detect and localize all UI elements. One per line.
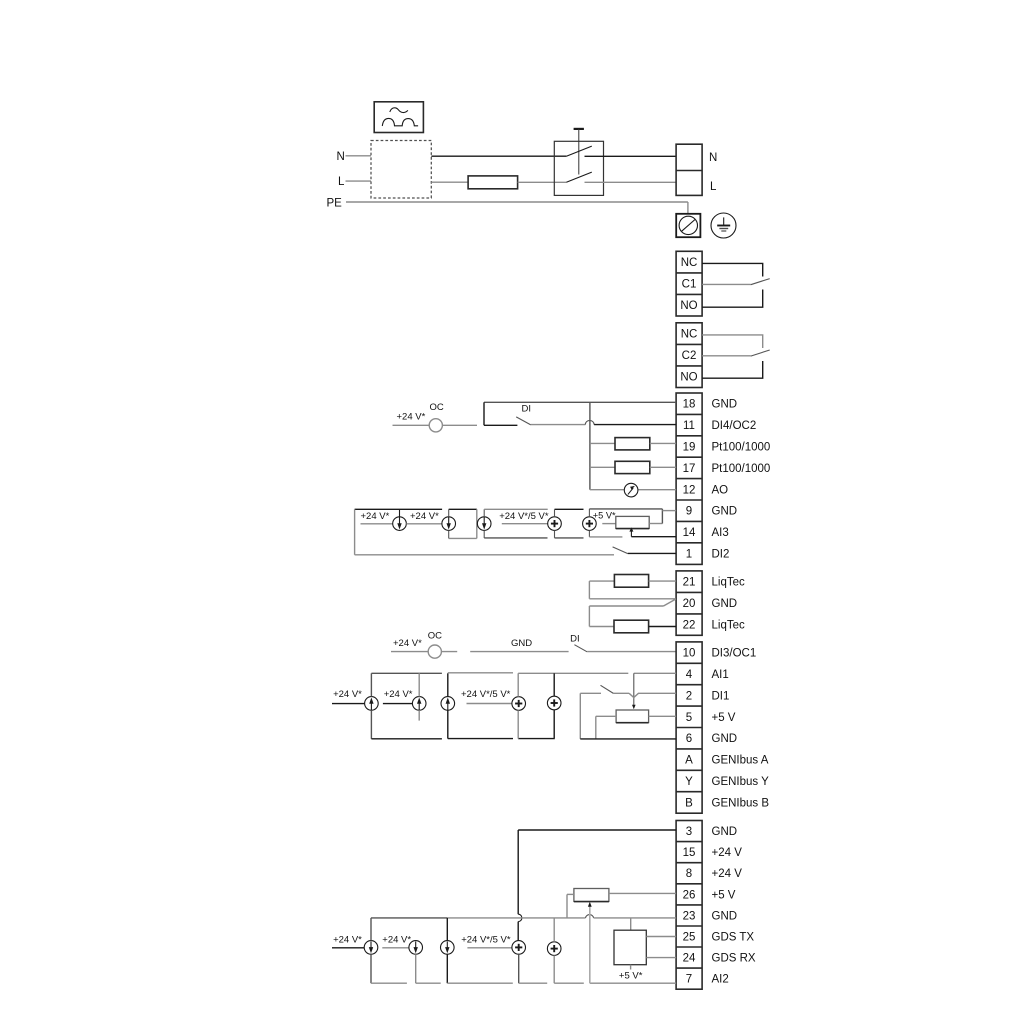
svg-text:22: 22 [683, 620, 696, 632]
svg-text:NO: NO [680, 300, 697, 312]
svg-text:+5 V: +5 V [712, 889, 736, 901]
svg-text:GND: GND [712, 399, 738, 411]
svg-text:GDS RX: GDS RX [712, 953, 756, 965]
svg-text:6: 6 [686, 733, 692, 745]
svg-text:L: L [338, 176, 345, 188]
svg-text:+5 V*: +5 V* [619, 970, 643, 981]
svg-text:AI1: AI1 [712, 669, 729, 681]
svg-text:7: 7 [686, 974, 692, 986]
svg-text:GND: GND [712, 506, 738, 518]
svg-text:19: 19 [683, 442, 696, 454]
svg-text:5: 5 [686, 712, 692, 724]
svg-text:14: 14 [683, 527, 696, 539]
svg-text:GND: GND [712, 826, 738, 838]
svg-text:GENIbus B: GENIbus B [712, 797, 770, 809]
svg-text:20: 20 [683, 598, 696, 610]
svg-text:NC: NC [681, 329, 698, 341]
svg-text:AI2: AI2 [712, 974, 729, 986]
svg-text:DI: DI [522, 404, 532, 415]
svg-text:NC: NC [681, 257, 698, 269]
svg-text:11: 11 [683, 420, 695, 432]
svg-text:12: 12 [683, 484, 696, 496]
svg-text:26: 26 [683, 889, 696, 901]
svg-text:+24 V*: +24 V* [333, 689, 362, 700]
svg-text:L: L [710, 181, 717, 193]
svg-text:DI: DI [570, 634, 580, 645]
svg-text:+24 V*: +24 V* [361, 511, 390, 522]
svg-text:15: 15 [683, 847, 696, 859]
svg-text:+24 V: +24 V [712, 868, 743, 880]
svg-text:25: 25 [683, 932, 696, 944]
svg-text:24: 24 [683, 953, 696, 965]
svg-text:Pt100/1000: Pt100/1000 [712, 463, 771, 475]
svg-text:Pt100/1000: Pt100/1000 [712, 442, 771, 454]
svg-text:DI2: DI2 [712, 549, 730, 561]
svg-text:23: 23 [683, 910, 696, 922]
svg-text:9: 9 [686, 506, 692, 518]
svg-text:+24 V*/5 V*: +24 V*/5 V* [461, 689, 511, 700]
svg-text:+24 V: +24 V [712, 847, 743, 859]
svg-text:+24 V*/5 V*: +24 V*/5 V* [499, 511, 549, 522]
svg-text:N: N [709, 152, 717, 164]
svg-text:+5 V*: +5 V* [593, 511, 616, 521]
svg-text:GDS TX: GDS TX [712, 932, 755, 944]
svg-text:+24 V*: +24 V* [384, 689, 413, 700]
svg-text:1: 1 [686, 549, 692, 561]
svg-text:DI1: DI1 [712, 690, 730, 702]
svg-text:4: 4 [686, 669, 693, 681]
svg-text:GND: GND [712, 910, 738, 922]
svg-text:8: 8 [686, 868, 692, 880]
svg-text:OC: OC [428, 631, 442, 642]
svg-text:+24 V*: +24 V* [410, 511, 439, 522]
svg-text:18: 18 [683, 399, 696, 411]
svg-text:+24 V*/5 V*: +24 V*/5 V* [461, 935, 511, 946]
svg-text:A: A [685, 755, 693, 767]
svg-text:LiqTec: LiqTec [712, 620, 745, 632]
svg-text:AO: AO [712, 484, 729, 496]
svg-text:OC: OC [430, 402, 444, 413]
svg-text:GND: GND [511, 638, 532, 649]
svg-text:+24 V*: +24 V* [393, 638, 422, 649]
svg-text:3: 3 [686, 826, 692, 838]
svg-text:10: 10 [683, 648, 696, 660]
svg-text:2: 2 [686, 690, 692, 702]
svg-text:GENIbus A: GENIbus A [712, 755, 769, 767]
svg-text:17: 17 [683, 463, 696, 475]
svg-text:+24 V*: +24 V* [397, 412, 426, 423]
svg-text:Y: Y [685, 776, 693, 788]
svg-text:GENIbus Y: GENIbus Y [712, 776, 770, 788]
svg-text:DI4/OC2: DI4/OC2 [712, 420, 757, 432]
svg-text:C1: C1 [682, 279, 697, 291]
svg-text:PE: PE [327, 197, 343, 209]
svg-text:NO: NO [680, 372, 697, 384]
svg-text:GND: GND [712, 733, 738, 745]
svg-text:N: N [337, 151, 345, 163]
svg-text:B: B [685, 797, 693, 809]
svg-text:AI3: AI3 [712, 527, 729, 539]
svg-text:DI3/OC1: DI3/OC1 [712, 648, 757, 660]
svg-text:+24 V*: +24 V* [333, 935, 362, 946]
svg-text:21: 21 [683, 577, 696, 589]
svg-text:+5 V: +5 V [712, 712, 736, 724]
svg-text:GND: GND [712, 598, 738, 610]
svg-text:+24 V*: +24 V* [382, 935, 411, 946]
svg-text:LiqTec: LiqTec [712, 577, 745, 589]
svg-text:C2: C2 [682, 350, 697, 362]
